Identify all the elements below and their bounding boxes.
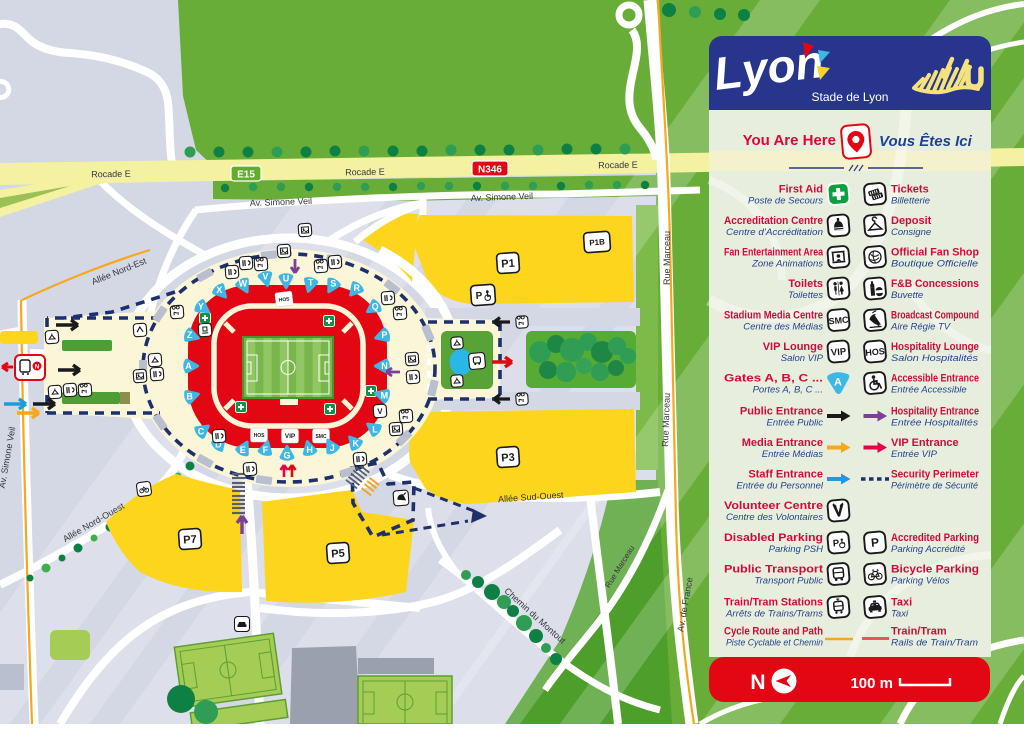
- svg-text:Media Entrance: Media Entrance: [742, 437, 823, 449]
- svg-text:Rocade E: Rocade E: [598, 160, 638, 171]
- svg-text:F: F: [263, 445, 269, 455]
- svg-text:Public Entrance: Public Entrance: [740, 406, 823, 418]
- svg-text:L: L: [372, 424, 378, 434]
- svg-text:A: A: [834, 377, 842, 389]
- svg-text:K: K: [352, 439, 359, 449]
- svg-text:Stadium Media Centre: Stadium Media Centre: [724, 310, 823, 322]
- svg-text:S: S: [330, 279, 336, 289]
- svg-text:Parking Accrédité: Parking Accrédité: [891, 544, 965, 555]
- svg-text:Entrée du Personnel: Entrée du Personnel: [736, 481, 824, 492]
- svg-text:F&B Concessions: F&B Concessions: [891, 278, 979, 290]
- svg-text:J: J: [330, 443, 335, 453]
- svg-text:Rocade E: Rocade E: [345, 167, 385, 178]
- svg-text:E15: E15: [237, 170, 255, 181]
- svg-text:Security Perimeter: Security Perimeter: [891, 469, 980, 481]
- svg-text:You Are Here: You Are Here: [743, 132, 836, 149]
- svg-text:Official Fan Shop: Official Fan Shop: [891, 247, 979, 259]
- svg-text:Poste de Secours: Poste de Secours: [748, 196, 823, 207]
- svg-text:Rue Marceau: Rue Marceau: [660, 393, 672, 447]
- svg-text:Accreditation Centre: Accreditation Centre: [724, 215, 823, 227]
- svg-text:P: P: [870, 535, 879, 550]
- svg-text:Y: Y: [198, 301, 204, 311]
- svg-text:Bicycle Parking: Bicycle Parking: [891, 564, 979, 576]
- svg-text:Broadcast Compound: Broadcast Compound: [891, 310, 979, 322]
- svg-text:VIP: VIP: [285, 433, 296, 440]
- svg-text:U: U: [283, 273, 290, 283]
- svg-text:Z: Z: [187, 330, 193, 340]
- svg-text:Parking PSH: Parking PSH: [769, 544, 824, 555]
- svg-text:Stade de Lyon: Stade de Lyon: [812, 90, 889, 104]
- svg-text:100 m: 100 m: [850, 675, 893, 692]
- svg-text:Hospitality Lounge: Hospitality Lounge: [891, 341, 979, 353]
- svg-text:P7: P7: [183, 534, 197, 547]
- svg-text:Rue Marceau: Rue Marceau: [662, 231, 672, 285]
- svg-text:Salon VIP: Salon VIP: [781, 353, 824, 364]
- svg-text:Buvette: Buvette: [891, 290, 923, 301]
- svg-text:T: T: [308, 277, 314, 287]
- svg-text:Zone Animations: Zone Animations: [751, 259, 823, 270]
- svg-text:H: H: [306, 445, 313, 455]
- svg-text:Hospitality Entrance: Hospitality Entrance: [891, 406, 979, 418]
- svg-text:Centre des Médias: Centre des Médias: [743, 322, 823, 333]
- svg-text:Entrée Public: Entrée Public: [766, 418, 823, 429]
- svg-text:Volunteer Centre: Volunteer Centre: [724, 500, 823, 512]
- svg-text:Train/Tram Stations: Train/Tram Stations: [724, 597, 823, 609]
- svg-text:Rails de Train/Tram: Rails de Train/Tram: [891, 638, 978, 649]
- svg-text:SMC: SMC: [828, 315, 849, 327]
- svg-text:VIP Lounge: VIP Lounge: [763, 341, 823, 353]
- svg-text:Transport Public: Transport Public: [755, 576, 824, 587]
- svg-text:Portes A, B, C ...: Portes A, B, C ...: [753, 385, 823, 396]
- svg-text:N346: N346: [478, 165, 502, 176]
- svg-text:P3: P3: [501, 452, 515, 465]
- svg-text:B: B: [186, 392, 193, 402]
- svg-text:P1: P1: [501, 258, 515, 271]
- svg-text:Gates A, B, C ...: Gates A, B, C ...: [724, 373, 823, 385]
- svg-text:Consigne: Consigne: [891, 227, 931, 238]
- svg-text:N: N: [750, 671, 765, 694]
- svg-text:Parking Vélos: Parking Vélos: [891, 576, 950, 587]
- svg-text:Fan Entertainment Area: Fan Entertainment Area: [724, 247, 824, 259]
- svg-text:Arrêts de Trains/Trams: Arrêts de Trains/Trams: [725, 609, 823, 620]
- svg-text:A: A: [185, 361, 192, 371]
- svg-text:P: P: [475, 291, 483, 302]
- svg-text:G: G: [283, 450, 290, 460]
- svg-text:Centre des Volontaires: Centre des Volontaires: [726, 512, 823, 523]
- svg-text:Q: Q: [372, 301, 379, 311]
- svg-text:VIP Entrance: VIP Entrance: [891, 437, 959, 449]
- svg-text:E: E: [240, 445, 246, 455]
- svg-text:Taxi: Taxi: [891, 609, 909, 620]
- svg-text:P: P: [381, 330, 387, 340]
- svg-text:Entrée Médias: Entrée Médias: [762, 449, 824, 460]
- svg-text:V: V: [262, 271, 268, 281]
- svg-text:Périmètre de Sécurité: Périmètre de Sécurité: [891, 481, 978, 492]
- svg-text:Toilettes: Toilettes: [788, 290, 823, 301]
- svg-text:Staff Entrance: Staff Entrance: [748, 469, 823, 481]
- svg-text:P1B: P1B: [589, 237, 605, 247]
- svg-text:Piste Cyclable et Chemin: Piste Cyclable et Chemin: [726, 638, 823, 649]
- svg-text:Boutique Officielle: Boutique Officielle: [891, 259, 978, 270]
- svg-text:VIP: VIP: [830, 346, 847, 358]
- svg-text:Entrée Hospitalités: Entrée Hospitalités: [891, 418, 978, 429]
- svg-text:Public Transport: Public Transport: [724, 564, 823, 576]
- svg-text:N: N: [35, 365, 39, 371]
- svg-text:Tickets: Tickets: [891, 184, 929, 196]
- svg-text:Toilets: Toilets: [788, 278, 823, 290]
- svg-text:C: C: [198, 426, 205, 436]
- svg-text:Rocade E: Rocade E: [91, 169, 131, 180]
- svg-text:Vous Êtes Ici: Vous Êtes Ici: [879, 132, 973, 150]
- svg-text:Aire Régie TV: Aire Régie TV: [890, 322, 952, 333]
- svg-text:Train/Tram: Train/Tram: [891, 626, 947, 638]
- svg-text:HOS: HOS: [865, 346, 885, 358]
- svg-text:Deposit: Deposit: [891, 215, 932, 227]
- svg-text:Centre d'Accréditation: Centre d'Accréditation: [726, 227, 823, 238]
- svg-text:Accessible Entrance: Accessible Entrance: [891, 373, 979, 385]
- svg-text:Taxi: Taxi: [891, 597, 912, 609]
- svg-text:N: N: [381, 361, 388, 371]
- svg-text:First Aid: First Aid: [779, 184, 823, 196]
- svg-text:Billetterie: Billetterie: [891, 196, 930, 207]
- svg-text:Disabled Parking: Disabled Parking: [724, 532, 823, 544]
- svg-text:M: M: [381, 391, 389, 401]
- svg-text:HOS: HOS: [254, 433, 266, 439]
- svg-text:Cycle Route and Path: Cycle Route and Path: [724, 626, 823, 638]
- svg-text:X: X: [216, 285, 222, 295]
- svg-text:R: R: [353, 283, 360, 293]
- svg-text:Entrée VIP: Entrée VIP: [891, 449, 938, 460]
- svg-text:Accredited Parking: Accredited Parking: [891, 532, 979, 544]
- svg-text:W: W: [239, 279, 248, 289]
- svg-text:SMC: SMC: [315, 434, 327, 440]
- svg-text:Entrée Accessible: Entrée Accessible: [891, 385, 967, 396]
- svg-text:Salon Hospitalités: Salon Hospitalités: [891, 353, 978, 364]
- svg-text:P5: P5: [331, 548, 345, 561]
